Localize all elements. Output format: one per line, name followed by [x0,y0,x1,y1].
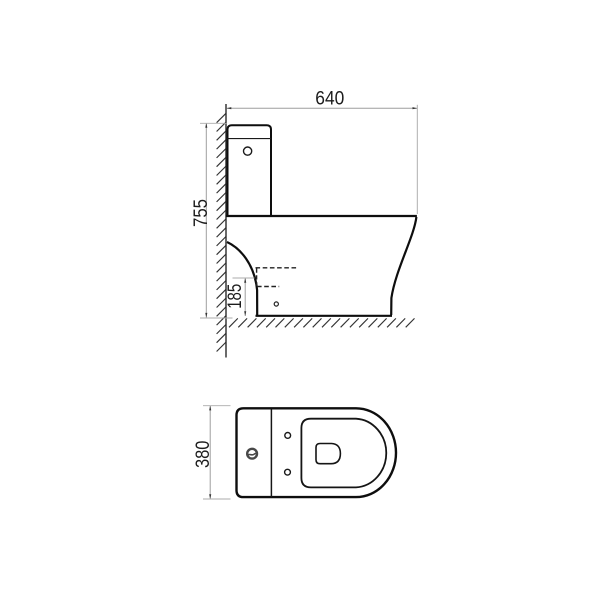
svg-text:380: 380 [193,441,214,469]
svg-text:640: 640 [315,89,344,110]
svg-text:755: 755 [191,199,212,227]
svg-text:185: 185 [225,284,246,309]
